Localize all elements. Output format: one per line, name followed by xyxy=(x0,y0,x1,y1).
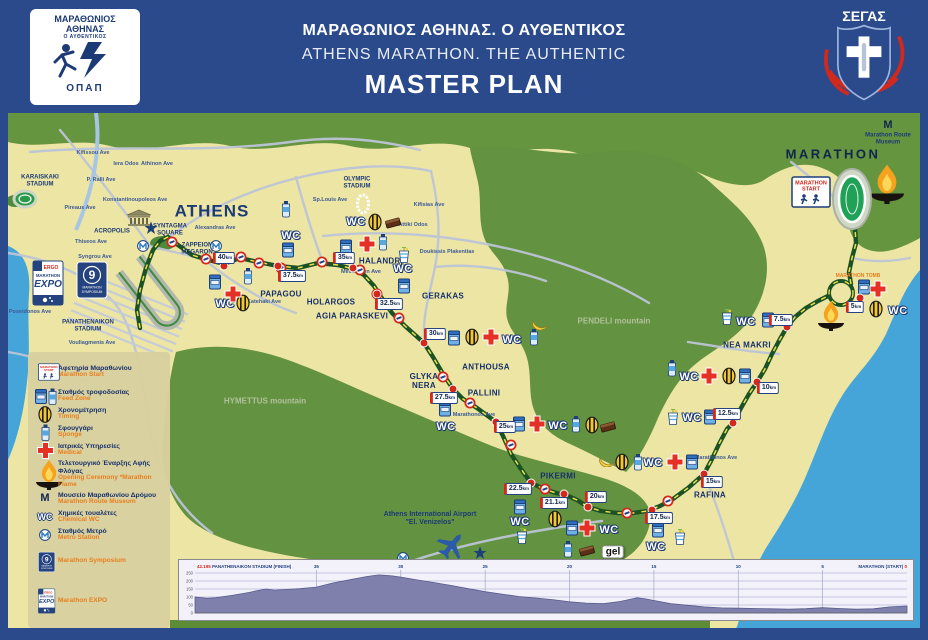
sponge-icon xyxy=(572,416,581,433)
wc-label: WC xyxy=(736,316,755,328)
prohib-icon xyxy=(437,371,449,383)
wc-label: WC xyxy=(510,516,529,528)
svg-text:START: START xyxy=(44,368,54,372)
svg-text:35: 35 xyxy=(314,564,320,569)
km-marker-40: 40km xyxy=(213,252,235,264)
map-label: MARATHON xyxy=(786,148,881,163)
wc-label: WC xyxy=(436,421,455,433)
timing-icon xyxy=(722,368,736,385)
svg-text:MARATHON: MARATHON xyxy=(82,286,102,290)
km-marker-17.5: 17.5km xyxy=(645,512,673,524)
feed-icon xyxy=(738,368,752,385)
map-label: PANATHENAIKON STADIUM xyxy=(62,319,114,332)
prohib-icon xyxy=(253,257,265,269)
header: ΜΑΡΑΘΩΝΙΟΣ ΑΘΗΝΑΣ. Ο ΑΥΘΕΝΤΙΚΟΣ ATHENS M… xyxy=(0,0,928,113)
feed-icon xyxy=(651,522,665,539)
map-label: GERAKAS xyxy=(422,293,464,302)
medical-icon xyxy=(579,520,596,537)
legend-label-english: Marathon Start xyxy=(58,372,166,379)
runner-icon xyxy=(50,40,120,80)
sponge-icon xyxy=(564,541,573,558)
map-label: P. Ralli Ave xyxy=(87,177,116,183)
medical-icon xyxy=(225,286,242,303)
wc-label: WC xyxy=(599,524,618,536)
startsign-icon: MARATHONSTART xyxy=(791,176,831,208)
km-dot-35 xyxy=(349,264,358,273)
timing-icon xyxy=(548,511,562,528)
legend-item: ERGOMARATHONEXPOMarathon EXPO xyxy=(32,579,166,623)
wc-label: WC xyxy=(888,305,907,317)
svg-text:9: 9 xyxy=(45,556,49,563)
legend-item: Σταθμός τροφοδοσίαςFeed Zone xyxy=(32,387,166,405)
svg-text:0: 0 xyxy=(191,611,194,616)
legend-item: Τελετουργικό Έναρξης Αφής ΦλόγαςOpening … xyxy=(32,459,166,489)
svg-text:250: 250 xyxy=(186,571,194,576)
map-label: Poseidonos Ave xyxy=(9,309,51,315)
prohib-icon xyxy=(200,253,212,265)
gelbar-icon xyxy=(578,545,596,557)
feed-icon xyxy=(565,520,579,537)
cup-icon xyxy=(398,247,411,264)
map-label: Konstantinoupoleos Ave xyxy=(103,197,167,203)
timing-icon xyxy=(465,329,479,346)
svg-text:MARATHON (START) 0: MARATHON (START) 0 xyxy=(858,564,907,569)
svg-text:ERGO: ERGO xyxy=(44,265,59,271)
feed-icon xyxy=(208,274,222,291)
legend-item: MΜουσείο Μαραθωνίου ΔρόμουMarathon Route… xyxy=(32,490,166,508)
symposium-icon: 9MARATHONSYMPOSIUM xyxy=(76,261,108,299)
map-label: Marathon Route Museum xyxy=(865,132,911,145)
svg-text:EXPO: EXPO xyxy=(39,599,55,605)
metro-icon xyxy=(32,529,58,541)
km-marker-22.5: 22.5km xyxy=(504,483,532,495)
km-marker-7.5: 7.5km xyxy=(769,314,793,326)
legend-label-english: Metro Station xyxy=(58,535,166,542)
km-marker-35: 35km xyxy=(333,252,355,264)
startsign-icon: MARATHONSTART xyxy=(32,356,58,388)
banana-icon xyxy=(599,455,615,467)
stadium-icon xyxy=(830,166,874,232)
map-label: Kifissou Ave xyxy=(77,150,110,156)
wc-label: WC xyxy=(502,334,521,346)
feedgrp-icon xyxy=(32,388,58,405)
medical-icon xyxy=(667,454,684,471)
gelbar-icon xyxy=(384,217,402,229)
map-label: Marathonos Ave xyxy=(695,455,737,461)
km-dot-20 xyxy=(584,503,593,512)
km-marker-25: 25km xyxy=(494,421,516,433)
athens-marathon-master-plan-poster: ATHENSMARATHONHALANDRIPAPAGOUHOLARGOSAGI… xyxy=(0,0,928,640)
map-label: Pireaus Ave xyxy=(64,205,95,211)
legend-item: ΣφουγγάριSponge xyxy=(32,423,166,441)
km-marker-10: 10km xyxy=(757,382,779,394)
timing-icon xyxy=(585,417,599,434)
wc-label: WC xyxy=(393,263,412,275)
cup-icon xyxy=(721,309,734,326)
feed-icon xyxy=(397,278,411,295)
map-label: RAFINA xyxy=(694,492,726,501)
timing-icon xyxy=(869,301,883,318)
legend-label-english: Marathon Route Museum xyxy=(58,499,166,506)
medical-icon xyxy=(32,442,58,459)
gelbar-icon xyxy=(599,421,617,433)
svg-text:5: 5 xyxy=(821,564,824,569)
cup-icon xyxy=(674,529,687,546)
timing-icon xyxy=(615,454,629,471)
prohib-icon xyxy=(505,439,517,451)
timing-icon xyxy=(368,214,382,231)
prohib-icon xyxy=(166,236,178,248)
elevation-profile-chart: 050100150200250353025201510542.195 PANAT… xyxy=(178,559,914,621)
map-label: Thiseos Ave xyxy=(75,239,107,245)
svg-text:ERGO: ERGO xyxy=(44,591,53,595)
sponge-icon xyxy=(282,201,291,218)
legend-label-english: Timing xyxy=(58,414,166,421)
timing-icon xyxy=(32,406,58,423)
prohib-icon xyxy=(539,483,551,495)
svg-text:SYMPOSIUM: SYMPOSIUM xyxy=(82,290,103,294)
svg-text:30: 30 xyxy=(398,564,404,569)
wc-label: WC xyxy=(548,420,567,432)
map-label: Alexandras Ave xyxy=(195,225,236,231)
svg-text:10: 10 xyxy=(736,564,742,569)
prohib-icon xyxy=(393,312,405,324)
segas-logo: ΣΕΓΑΣ xyxy=(816,6,912,106)
banana-icon xyxy=(532,318,548,330)
legend-label-english: Marathon Symposium xyxy=(58,558,166,565)
svg-text:SYMPOSIUM: SYMPOSIUM xyxy=(41,568,53,570)
sponge-icon xyxy=(530,329,539,346)
medical-icon xyxy=(529,416,546,433)
cup-icon xyxy=(667,409,680,426)
wc-label: WC xyxy=(679,371,698,383)
map-label: M xyxy=(883,119,892,131)
map-label: PENDELI mountain xyxy=(578,318,651,327)
svg-text:START: START xyxy=(802,187,821,193)
map-label: Doukissis Plakentias xyxy=(420,249,475,255)
km-marker-27.5: 27.5km xyxy=(430,392,458,404)
legend-item: 9MARATHONSYMPOSIUMMarathon Symposium xyxy=(32,544,166,580)
expo-icon: ERGOMARATHONEXPO xyxy=(32,260,64,306)
karaiskaki-icon xyxy=(11,188,39,210)
map-label: Kifisias Ave xyxy=(414,202,445,208)
legend-label-english: Sponge xyxy=(58,432,166,439)
map-label: Vouliagmenis Ave xyxy=(69,340,116,346)
svg-text:200: 200 xyxy=(186,579,194,584)
flame-icon xyxy=(814,299,848,331)
svg-text:9: 9 xyxy=(89,268,96,282)
svg-text:20: 20 xyxy=(567,564,573,569)
sponge-icon xyxy=(379,234,388,251)
feed-icon xyxy=(281,242,295,259)
svg-text:42.195 PANATHENAIKON STADIUM (: 42.195 PANATHENAIKON STADIUM (FINISH) xyxy=(197,564,292,569)
flame-icon xyxy=(32,458,58,490)
legend-item: Σταθμός ΜετρόMetro Station xyxy=(32,526,166,544)
legend-label-english: Medical xyxy=(58,450,166,457)
map-label: GLYKA NERA xyxy=(410,373,439,391)
prohib-icon xyxy=(621,507,633,519)
map-label: Syngrou Ave xyxy=(78,254,112,260)
svg-text:MARATHON: MARATHON xyxy=(36,273,60,278)
medical-icon xyxy=(870,281,887,298)
map-label: AGIA PARASKEVI xyxy=(316,313,388,322)
map-label: Attiki Odos xyxy=(398,222,427,228)
legend-item: MARATHONSTARTΑφετηρία ΜαραθωνίουMarathon… xyxy=(32,357,166,387)
map-label: Marathonos Ave xyxy=(453,412,495,418)
km-marker-20: 20km xyxy=(585,491,607,503)
svg-text:150: 150 xyxy=(186,587,194,592)
map-label: SYNTAGMA SQUARE xyxy=(153,223,187,236)
map-label: OLYMPIC STADIUM xyxy=(344,176,371,189)
legend-item: WCΧημικές τουαλέτεςChemical WC xyxy=(32,508,166,526)
legend-label-greek: Τελετουργικό Έναρξης Αφής Φλόγας xyxy=(58,460,166,474)
prohib-icon xyxy=(316,256,328,268)
km-marker-32.5: 32.5km xyxy=(375,298,403,310)
km-marker-37.5: 37.5km xyxy=(278,270,306,282)
map-label: HYMETTUS mountain xyxy=(224,398,306,407)
sponge-icon xyxy=(32,424,58,441)
medical-icon xyxy=(701,368,718,385)
metro-icon xyxy=(210,240,222,252)
gel-label: gel xyxy=(602,545,624,558)
map-legend: MARATHONSTARTΑφετηρία ΜαραθωνίουMarathon… xyxy=(28,352,170,628)
svg-text:100: 100 xyxy=(186,595,194,600)
map-label: PIKERMI xyxy=(540,473,575,482)
map-label: NEA MAKRI xyxy=(723,342,771,351)
wc-label: WC xyxy=(281,230,300,242)
wc-icon: WC xyxy=(32,512,58,522)
km-marker-15: 15km xyxy=(701,476,723,488)
legend-label-english: Feed Zone xyxy=(58,396,166,403)
expo-icon: ERGOMARATHONEXPO xyxy=(32,578,58,624)
prohib-icon xyxy=(662,495,674,507)
medical-icon xyxy=(359,236,376,253)
prohib-icon xyxy=(464,397,476,409)
legend-item: Ιατρικές ΥπηρεσίεςMedical xyxy=(32,441,166,459)
map-label: ANTHOUSA xyxy=(462,364,510,373)
svg-text:MARATHON: MARATHON xyxy=(40,596,54,599)
feed-icon xyxy=(513,499,527,516)
wreath-icon xyxy=(355,193,371,215)
feed-icon xyxy=(685,454,699,471)
sponge-icon xyxy=(244,268,253,285)
km-marker-12.5: 12.5km xyxy=(713,408,741,420)
cup-icon xyxy=(516,528,529,545)
feed-icon xyxy=(447,330,461,347)
legend-label-english: Marathon EXPO xyxy=(58,598,166,605)
sponge-icon xyxy=(634,454,643,471)
prohib-icon xyxy=(235,251,247,263)
wc-label: WC xyxy=(682,412,701,424)
wc-label: WC xyxy=(643,457,662,469)
wc-label: WC xyxy=(346,216,365,228)
parthenon-icon xyxy=(125,209,153,227)
opap-marathon-logo: ΜΑΡΑΘΩΝΙΟΣ ΑΘΗΝΑΣ Ο ΑΥΘΕΝΤΙΚΟΣ ΟΠΑΠ xyxy=(30,9,140,105)
symposium-icon: 9MARATHONSYMPOSIUM xyxy=(32,543,58,581)
legend-label-english: Chemical WC xyxy=(58,517,166,524)
km-marker-5: 5km xyxy=(846,301,864,313)
star-icon xyxy=(473,546,487,560)
map-label: ATHENS xyxy=(175,201,250,220)
wc-label: WC xyxy=(646,541,665,553)
km-marker-21.1: 21.1km xyxy=(540,497,568,509)
sponge-icon xyxy=(668,360,677,377)
legend-label-english: Opening Ceremony *Marathon Flame xyxy=(58,475,166,489)
svg-text:ΣΕΓΑΣ: ΣΕΓΑΣ xyxy=(842,8,886,24)
map-label: Sp.Louis Ave xyxy=(313,197,347,203)
km-marker-30: 30km xyxy=(424,328,446,340)
map-label: Athinon Ave xyxy=(141,161,173,167)
legend-item: ΧρονομέτρησηTiming xyxy=(32,405,166,423)
map-label: KARAISKAKI STADIUM xyxy=(21,174,59,187)
svg-text:50: 50 xyxy=(188,603,193,608)
map-label: ACROPOLIS xyxy=(94,229,130,236)
svg-text:25: 25 xyxy=(483,564,489,569)
map-label: Katehaki Ave xyxy=(247,299,281,305)
svg-text:15: 15 xyxy=(651,564,657,569)
svg-text:EXPO: EXPO xyxy=(34,279,62,290)
map-label: Iera Odos xyxy=(113,161,138,167)
map-label: HOLARGOS xyxy=(307,299,356,308)
medical-icon xyxy=(483,329,500,346)
museum-icon: M xyxy=(32,493,58,504)
metro-icon xyxy=(137,240,149,252)
